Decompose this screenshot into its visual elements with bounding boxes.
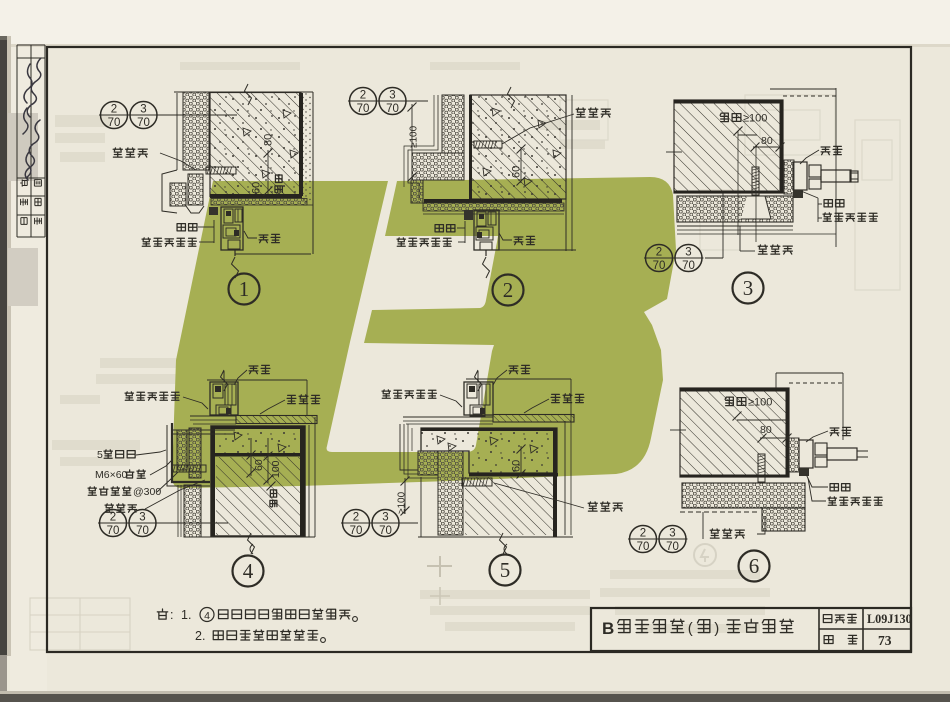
svg-text:60: 60 <box>251 182 263 194</box>
svg-text:M6×60: M6×60 <box>95 469 128 481</box>
svg-text:2: 2 <box>640 528 646 540</box>
svg-text:≥100: ≥100 <box>397 491 408 514</box>
svg-text:4: 4 <box>204 610 210 622</box>
svg-text:3: 3 <box>669 528 675 540</box>
svg-text:1.: 1. <box>181 608 191 622</box>
svg-text:70: 70 <box>637 541 650 553</box>
svg-text:2: 2 <box>503 278 514 302</box>
svg-text:70: 70 <box>386 103 399 115</box>
svg-text:70: 70 <box>666 541 679 553</box>
svg-text:3: 3 <box>743 276 754 300</box>
svg-text:L09J130: L09J130 <box>867 612 912 626</box>
svg-text:B: B <box>602 619 614 638</box>
svg-text:6: 6 <box>749 554 760 578</box>
svg-text:60: 60 <box>511 460 523 472</box>
svg-text:2: 2 <box>656 247 662 259</box>
svg-text:1: 1 <box>239 277 250 301</box>
svg-text:3: 3 <box>382 512 388 524</box>
svg-text:60: 60 <box>253 459 265 471</box>
svg-text:): ) <box>714 620 719 637</box>
svg-text:80: 80 <box>761 135 773 147</box>
svg-text:3: 3 <box>389 90 395 102</box>
svg-text:3: 3 <box>685 247 691 259</box>
svg-text:70: 70 <box>653 260 666 272</box>
svg-text:70: 70 <box>136 525 149 537</box>
svg-text:5: 5 <box>500 558 511 582</box>
svg-text:2: 2 <box>110 512 116 524</box>
svg-text:(: ( <box>688 620 693 637</box>
svg-text:4: 4 <box>243 559 254 583</box>
svg-text:70: 70 <box>108 117 121 129</box>
svg-text:100: 100 <box>270 460 282 478</box>
svg-text:80: 80 <box>263 134 275 146</box>
svg-text:70: 70 <box>682 260 695 272</box>
svg-text:≥100: ≥100 <box>748 397 772 409</box>
svg-text:3: 3 <box>140 104 146 116</box>
svg-text:≥100: ≥100 <box>409 125 420 148</box>
svg-text:2.: 2. <box>195 629 205 643</box>
svg-text:2: 2 <box>353 512 359 524</box>
svg-text:70: 70 <box>357 103 370 115</box>
svg-text:2: 2 <box>360 90 366 102</box>
svg-text:2: 2 <box>111 104 117 116</box>
svg-text:≥100: ≥100 <box>743 113 767 125</box>
svg-text:70: 70 <box>379 525 392 537</box>
svg-text:70: 70 <box>350 525 363 537</box>
svg-text:70: 70 <box>107 525 120 537</box>
svg-text:5: 5 <box>97 449 103 461</box>
svg-text:70: 70 <box>137 117 150 129</box>
svg-text::: : <box>170 608 173 622</box>
svg-text:3: 3 <box>139 512 145 524</box>
svg-text:73: 73 <box>878 633 892 648</box>
svg-text:60: 60 <box>511 166 523 178</box>
